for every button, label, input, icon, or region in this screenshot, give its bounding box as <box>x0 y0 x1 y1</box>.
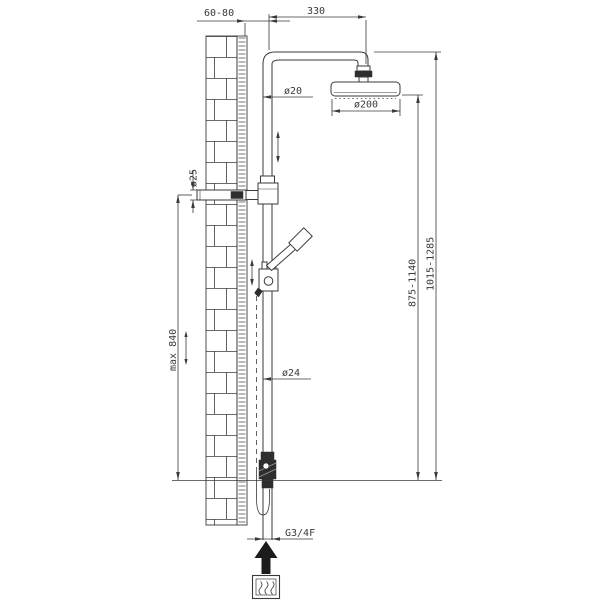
holder-slide-arrow <box>250 259 254 286</box>
dimension-upper-pipe-diameter: ø20 <box>263 86 313 99</box>
dimension-arm-length: 330 <box>269 6 366 64</box>
wavy-lines-icon <box>253 576 280 599</box>
dimension-lower-pipe-diameter: ø24 <box>263 368 311 381</box>
up-arrow-icon <box>255 541 278 574</box>
lower-pipe-diameter-label: ø24 <box>282 368 300 379</box>
wall-bar-diameter-label: ø25 <box>189 169 200 187</box>
height-to-head-label: 875-1140 <box>408 259 419 307</box>
wall-mount-bracket <box>197 190 258 200</box>
total-height-label: 1015-1285 <box>426 237 437 291</box>
dimension-inlet-thread: G3/4F <box>247 528 315 541</box>
dimension-slide-max-height: max 840 <box>168 195 192 480</box>
inlet-thread-label: G3/4F <box>285 528 315 539</box>
brick-wall <box>206 36 237 525</box>
dimension-height-to-head: 875-1140 <box>402 95 423 480</box>
dimension-head-diameter: ø200 <box>332 99 400 116</box>
head-diameter-label: ø200 <box>354 100 378 111</box>
diverter-junction <box>258 183 278 204</box>
riser-pipe-lower <box>263 204 272 540</box>
pipe-flange <box>261 176 275 183</box>
wall-offset-label: 60-80 <box>204 8 234 19</box>
hose-inlet-connector <box>259 452 276 488</box>
head-ball-joint <box>355 66 372 82</box>
upper-pipe-diameter-label: ø20 <box>284 86 302 97</box>
water-inlet <box>253 541 280 599</box>
arm-length-label: 330 <box>307 6 325 17</box>
slide-max-height-label: max 840 <box>168 329 179 371</box>
wall <box>206 36 247 525</box>
pipe-adjust-arrow <box>276 131 280 163</box>
technical-drawing-canvas: 60-80 330 ø20 ø200 <box>0 0 600 600</box>
hand-shower-handle <box>267 244 297 271</box>
wall-surface-hatch <box>237 36 247 525</box>
overhead-shower-head <box>331 82 400 99</box>
shower-arm <box>263 52 368 183</box>
